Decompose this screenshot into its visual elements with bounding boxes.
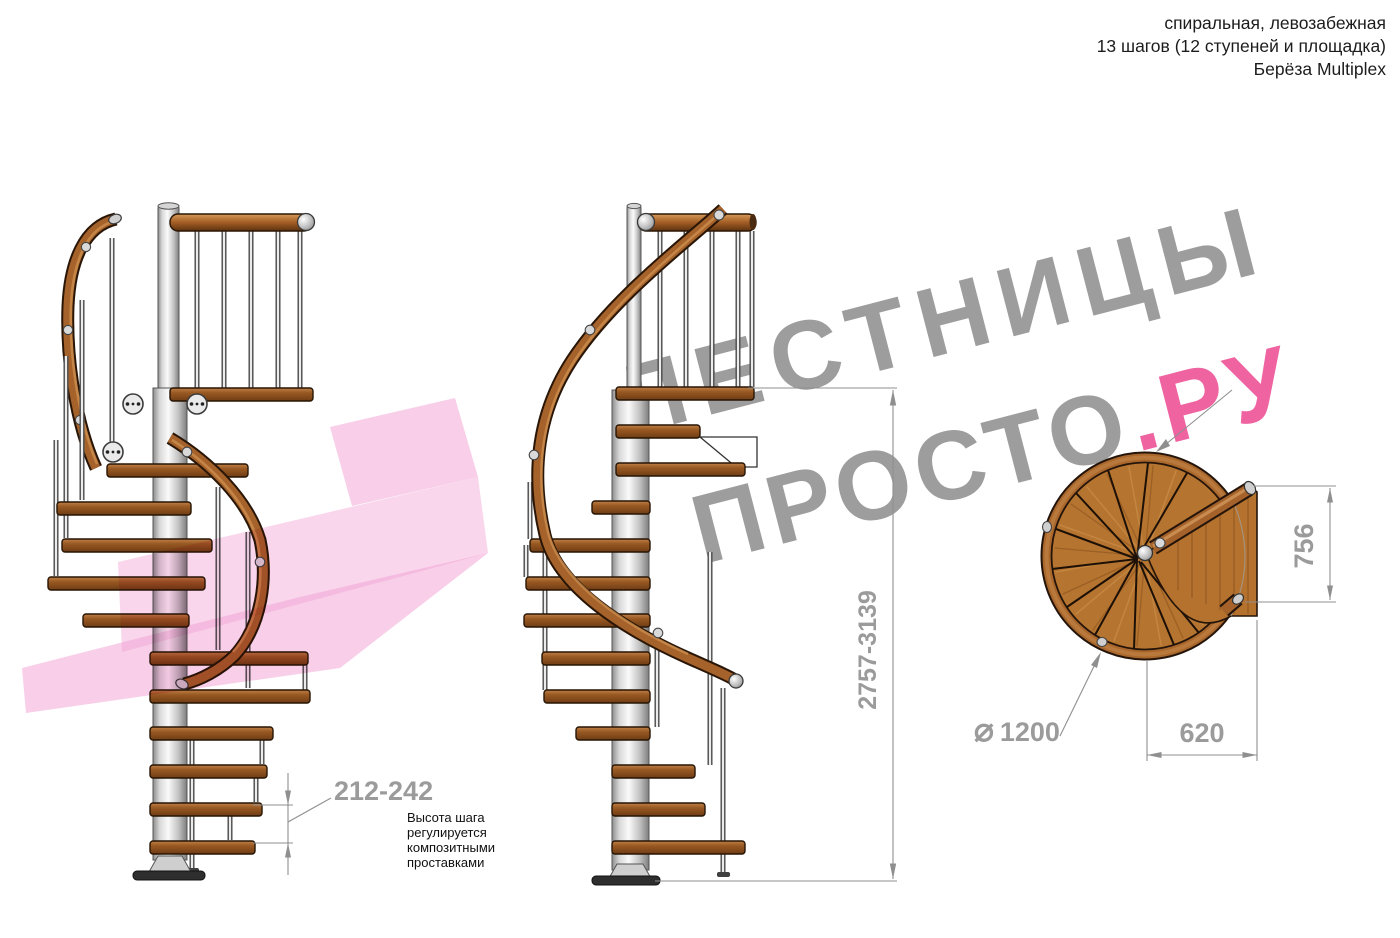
platform-depth-label: 756: [1289, 523, 1319, 568]
middle-view-base-plate: [592, 876, 660, 885]
dim-diameter-leader: [1060, 652, 1101, 736]
stair-top-view: [1042, 453, 1258, 660]
middle-view-baluster-foot: [717, 872, 730, 877]
left-view-upper-pole: [158, 205, 179, 395]
title-line-type: спиральная, левозабежная: [1097, 12, 1386, 35]
step-height-note: Высота шага регулируется композитными пр…: [407, 810, 495, 870]
step-height-label: 212-242: [334, 776, 433, 806]
top-view-upper-leader: [1156, 390, 1232, 452]
drawing-canvas: ЛЕСТНИЦЫ ПРОСТО.РУ: [0, 0, 1400, 938]
title-block: спиральная, левозабежная 13 шагов (12 ст…: [1097, 12, 1386, 81]
left-view-base-plate: [133, 871, 205, 880]
stair-middle-side-view: [524, 203, 757, 885]
spiral-staircase-technical-drawing: 212-242 2757-3139 756 620 ⌀1200: [0, 0, 1400, 938]
title-line-steps: 13 шагов (12 ступеней и площадка): [1097, 35, 1386, 58]
middle-view-rail-end-cap: [638, 214, 655, 231]
left-view-balcony-rail: [170, 214, 312, 231]
platform-width-label: 620: [1179, 718, 1224, 748]
left-view-pole-cap: [158, 203, 179, 209]
dim-step-height: [253, 773, 331, 875]
diameter-label: ⌀1200: [974, 711, 1060, 748]
middle-view-rail-right-cap: [750, 214, 757, 230]
left-view-rail-end-cap: [298, 214, 315, 231]
top-view-center-column: [1138, 546, 1153, 561]
middle-view-pole-cap: [627, 203, 641, 208]
total-height-label: 2757-3139: [854, 590, 882, 710]
title-line-material: Берёза Multiplex: [1097, 58, 1386, 81]
top-view-ring-fitting-bottom: [1097, 638, 1107, 647]
top-view-ring-fitting-left: [1043, 522, 1052, 533]
